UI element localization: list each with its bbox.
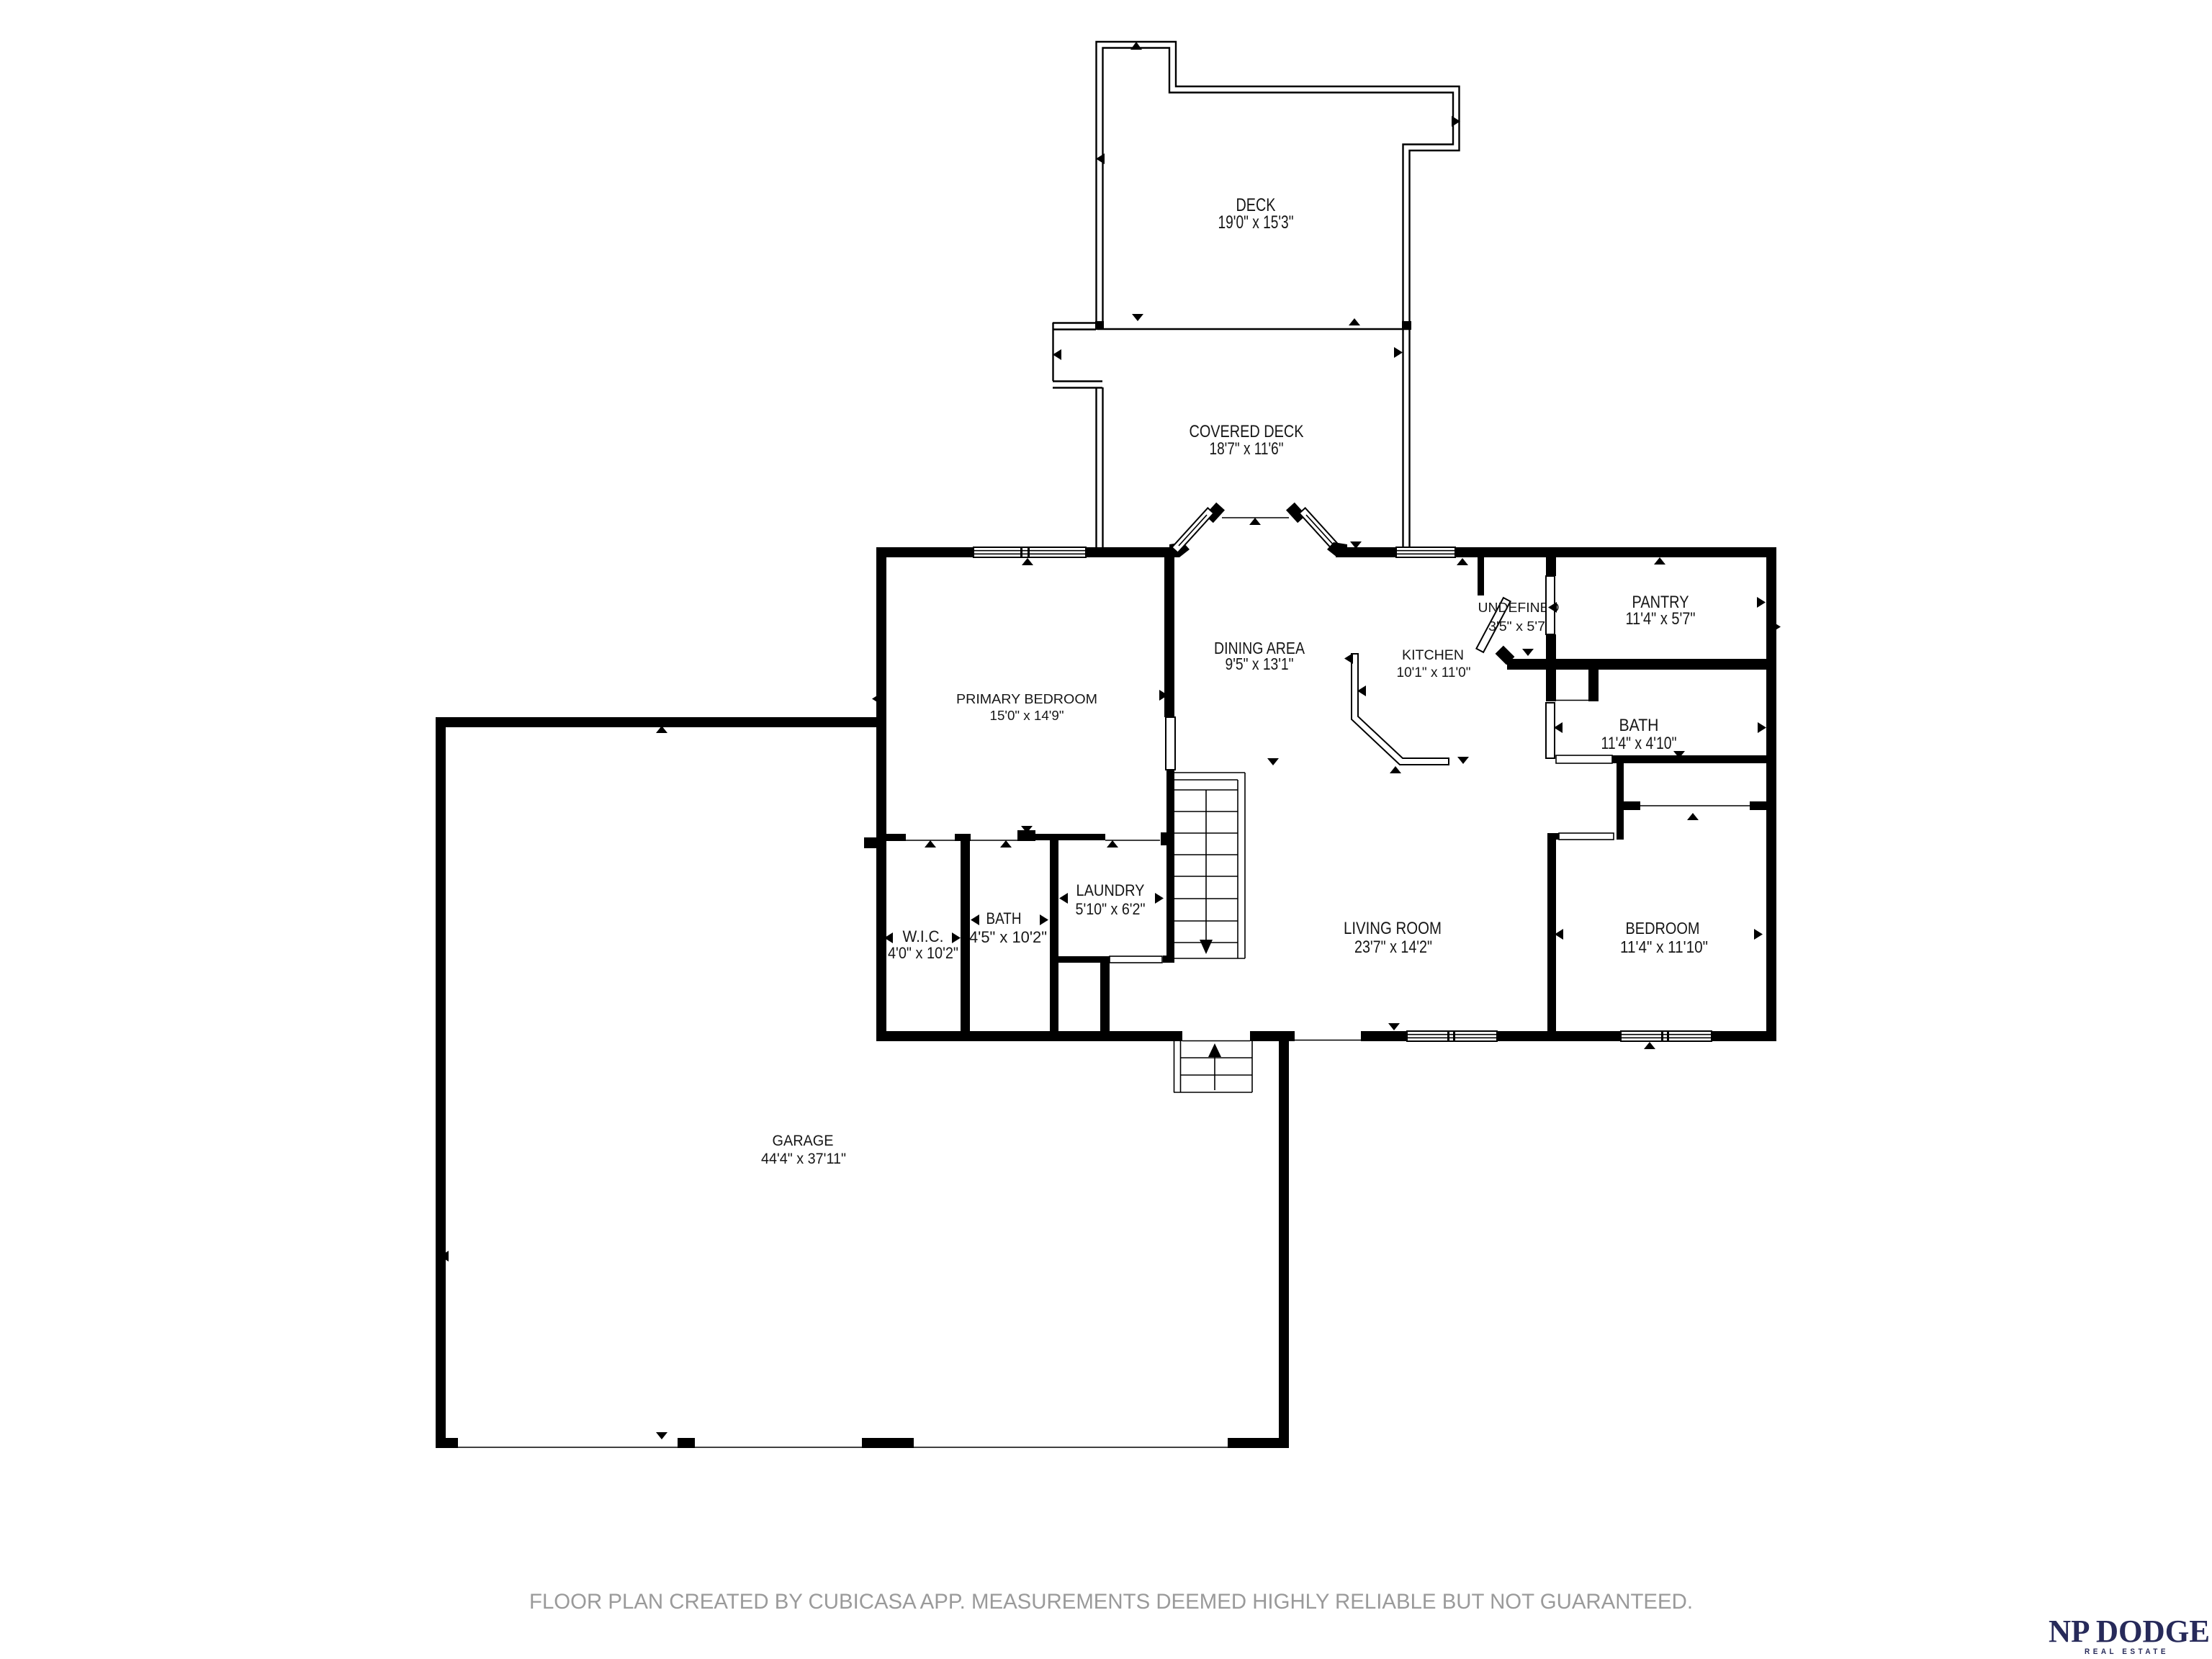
svg-text:4'5" x 10'2": 4'5" x 10'2": [969, 928, 1047, 946]
svg-text:5'10" x 6'2": 5'10" x 6'2": [1076, 900, 1146, 918]
svg-text:LAUNDRY: LAUNDRY: [1076, 881, 1145, 899]
svg-text:LIVING ROOM: LIVING ROOM: [1344, 919, 1442, 938]
svg-text:W.I.C.: W.I.C.: [903, 927, 944, 945]
svg-text:10'1" x 11'0": 10'1" x 11'0": [1397, 665, 1471, 680]
svg-text:BEDROOM: BEDROOM: [1626, 919, 1700, 938]
svg-text:NP DODGE: NP DODGE: [2049, 1614, 2210, 1649]
svg-text:BATH: BATH: [1619, 716, 1659, 735]
svg-text:3'5" x 5'7": 3'5" x 5'7": [1488, 619, 1550, 634]
svg-text:COVERED DECK: COVERED DECK: [1190, 422, 1304, 441]
svg-text:11'4" x 5'7": 11'4" x 5'7": [1626, 610, 1696, 629]
svg-text:BATH: BATH: [986, 909, 1022, 927]
svg-text:11'4" x 11'10": 11'4" x 11'10": [1620, 938, 1708, 956]
svg-text:9'5" x 13'1": 9'5" x 13'1": [1226, 655, 1294, 673]
svg-text:19'0" x 15'3": 19'0" x 15'3": [1218, 212, 1294, 233]
svg-text:44'4" x 37'11": 44'4" x 37'11": [761, 1151, 846, 1167]
svg-text:FLOOR PLAN CREATED BY CUBICASA: FLOOR PLAN CREATED BY CUBICASA APP. MEAS…: [529, 1590, 1693, 1614]
svg-text:PRIMARY BEDROOM: PRIMARY BEDROOM: [956, 691, 1097, 706]
svg-text:23'7" x 14'2": 23'7" x 14'2": [1354, 938, 1432, 957]
svg-text:REAL ESTATE: REAL ESTATE: [2085, 1647, 2169, 1656]
svg-text:11'4" x 4'10": 11'4" x 4'10": [1601, 734, 1677, 753]
svg-text:15'0" x 14'9": 15'0" x 14'9": [990, 708, 1064, 723]
svg-text:18'7" x 11'6": 18'7" x 11'6": [1210, 439, 1284, 459]
svg-text:KITCHEN: KITCHEN: [1402, 647, 1464, 663]
svg-text:GARAGE: GARAGE: [773, 1133, 834, 1149]
svg-text:4'0" x 10'2": 4'0" x 10'2": [888, 944, 958, 962]
